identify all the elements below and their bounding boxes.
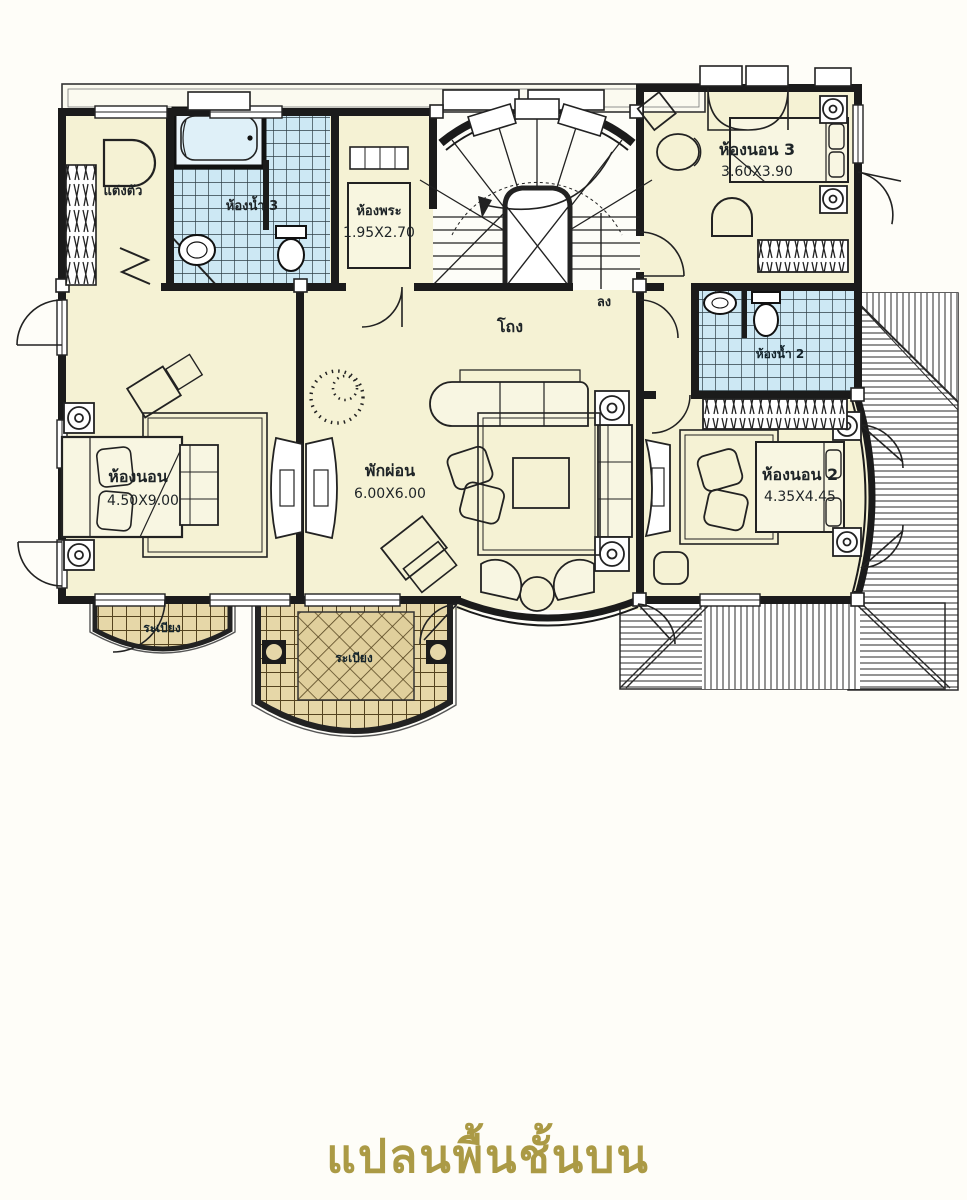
bathroom2 [697,290,855,393]
bathroom3 [170,109,330,287]
bedroom2-dims: 4.35X4.45 [764,489,836,505]
balcony-column [262,640,286,664]
bedroom2-label: ห้องนอน 2 [762,465,838,484]
bath2-label: ห้องน้ำ 2 [756,344,804,361]
floor-plan-drawing: แต่งตัว ห้องน้ำ 3 ห้องพระ 1.95X2.70 ห้อง… [0,0,967,1200]
toilet-icon [276,226,306,271]
toilet-icon [752,292,780,336]
balcony-large-label: ระเบียง [335,651,373,665]
balcony-large [252,600,456,737]
roof-bottom [620,603,950,689]
plan-title: แปลนพื้นชั้นบน [326,1122,650,1183]
floor-plan-page: แต่งตัว ห้องน้ำ 3 ห้องพระ 1.95X2.70 ห้อง… [0,0,967,1200]
sink-icon [179,235,215,265]
master-bedroom-dims: 4.50X9.00 [107,493,179,509]
sink-icon [704,292,736,314]
master-bedroom-label: ห้องนอน [108,467,168,486]
balcony-column [426,640,450,664]
lounge-dims: 6.00X6.00 [354,486,426,502]
prayer-dims: 1.95X2.70 [343,225,415,241]
balcony-small-label: ระเบียง [143,621,181,635]
bedroom3-label: ห้องนอน 3 [719,140,795,159]
stairs-down-label: ลง [597,295,611,310]
bedroom3-dims: 3.60X3.90 [721,164,793,180]
dressing-label: แต่งตัว [104,184,143,199]
lounge-label: พักผ่อน [365,461,415,480]
hall-label: โถง [496,316,523,336]
prayer-label: ห้องพระ [356,203,401,219]
